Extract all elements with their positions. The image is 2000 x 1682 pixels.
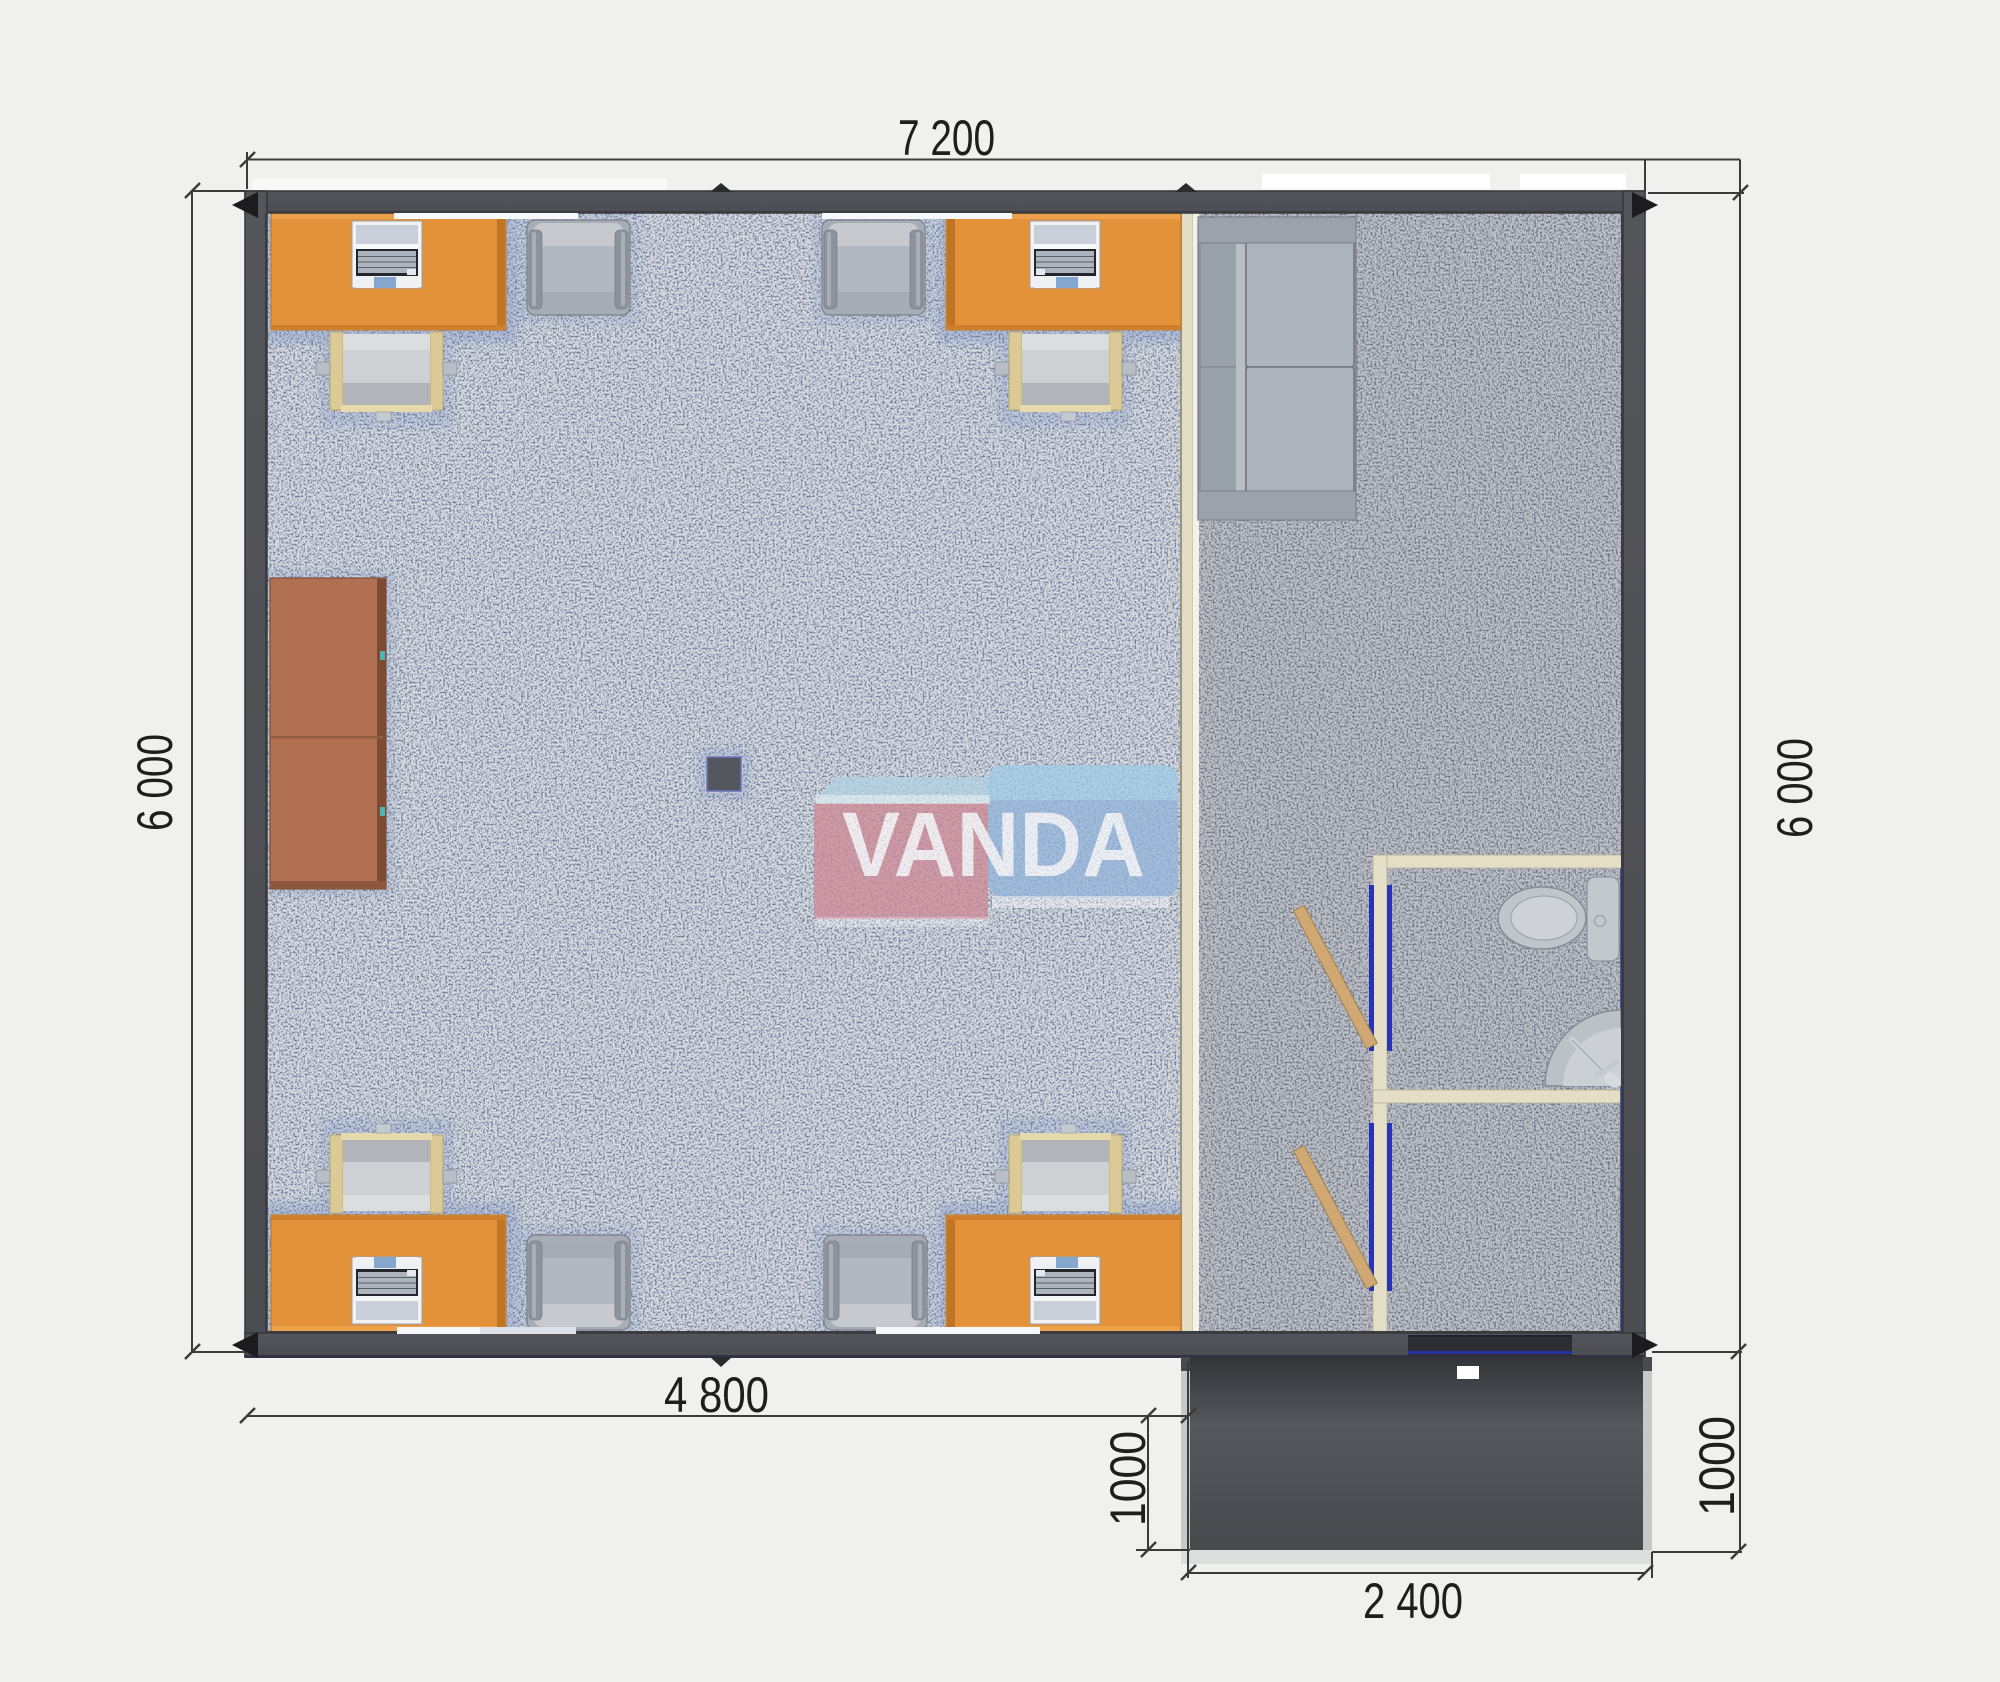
svg-text:6 000: 6 000 xyxy=(127,734,183,831)
svg-text:4 800: 4 800 xyxy=(664,1367,769,1423)
svg-text:7 200: 7 200 xyxy=(898,110,995,166)
svg-text:1000: 1000 xyxy=(1100,1431,1156,1526)
svg-text:6 000: 6 000 xyxy=(1767,738,1823,838)
svg-text:1000: 1000 xyxy=(1689,1416,1745,1516)
svg-text:2 400: 2 400 xyxy=(1363,1573,1463,1629)
svg-text:VANDA: VANDA xyxy=(842,794,1145,896)
